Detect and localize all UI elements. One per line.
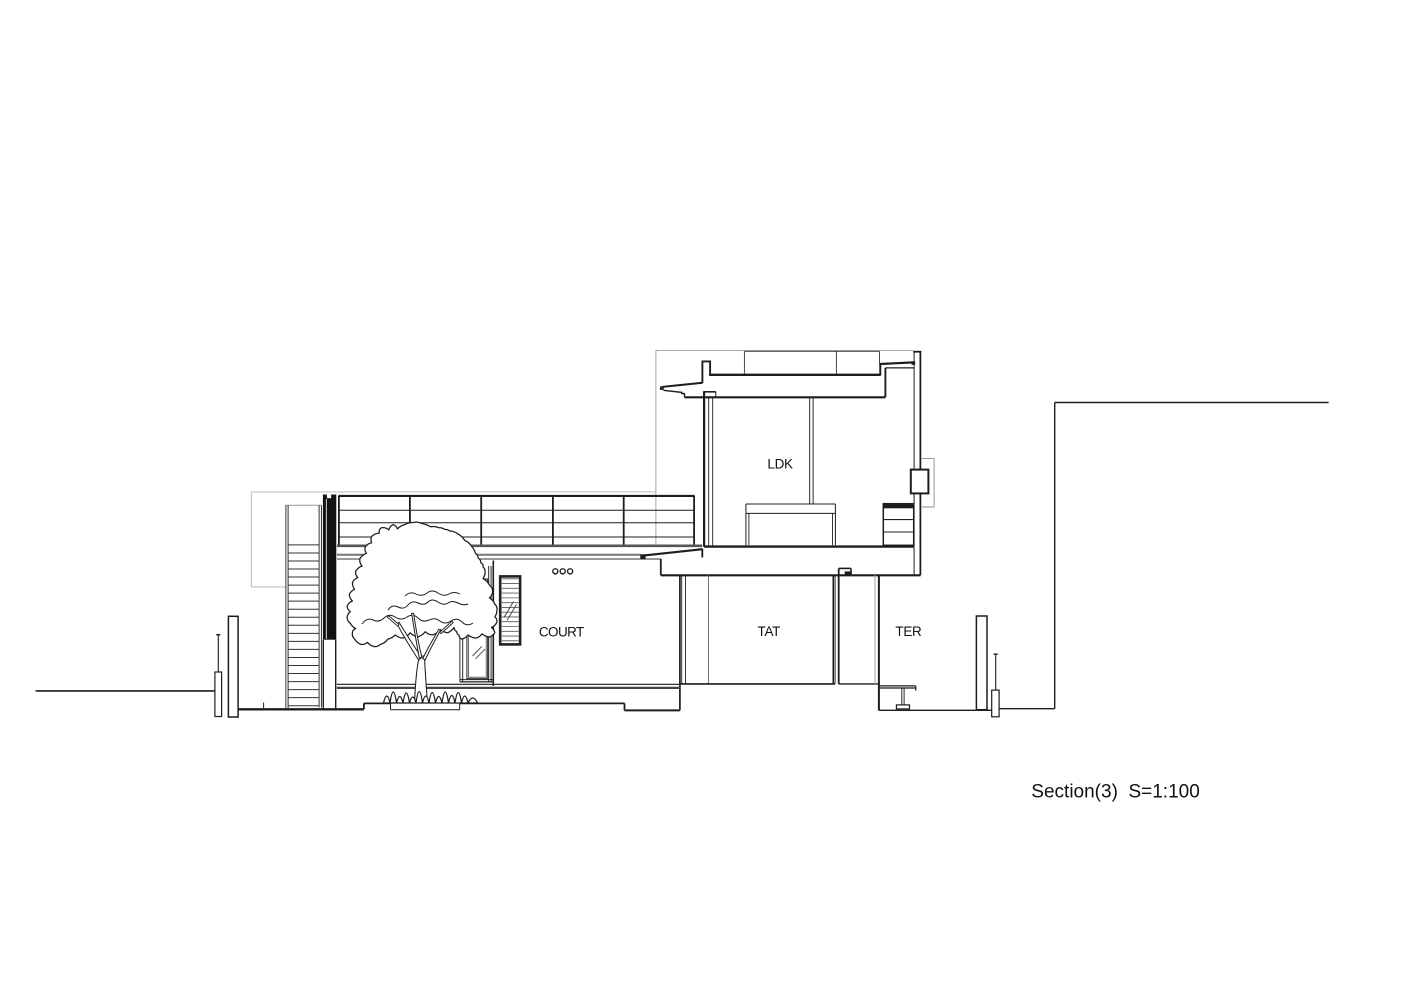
svg-text:Section(3) S=1:100: Section(3) S=1:100 [1031, 781, 1199, 802]
svg-text:COURT: COURT [539, 625, 584, 640]
svg-text:TAT: TAT [758, 624, 781, 639]
svg-text:TER: TER [895, 624, 922, 639]
svg-text:LDK: LDK [767, 457, 793, 472]
